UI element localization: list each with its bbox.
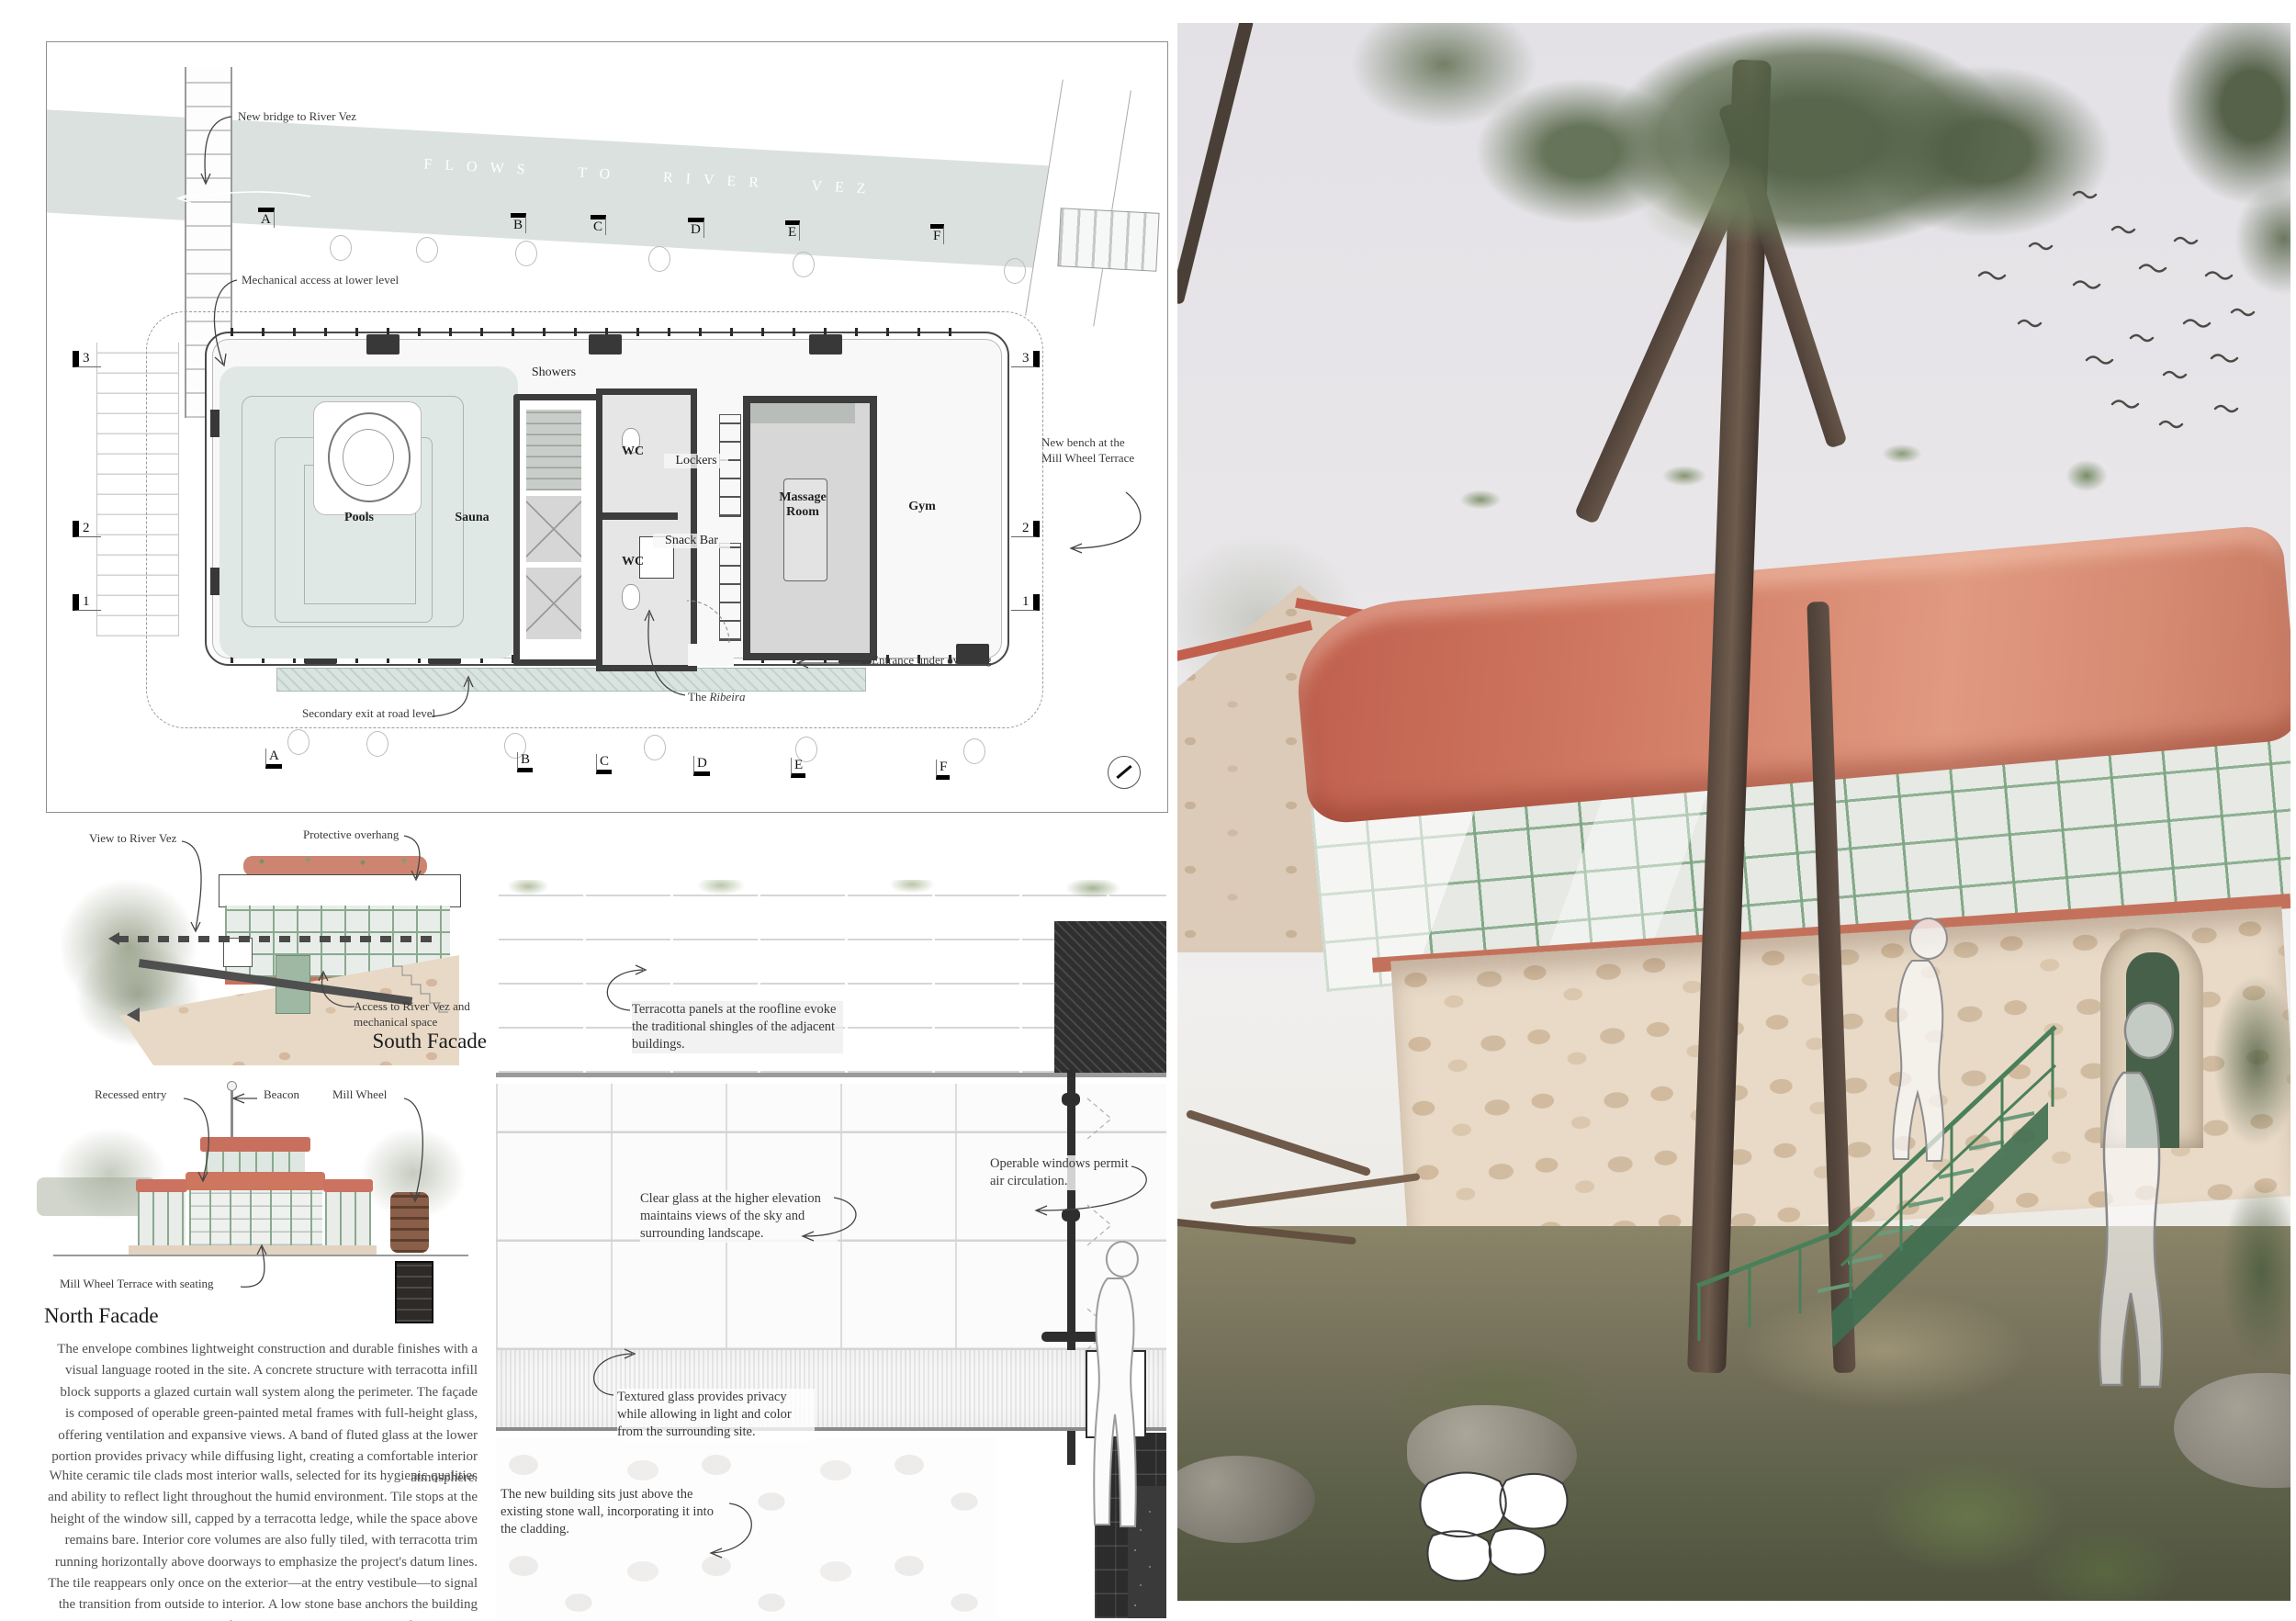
site-plan-panel: FLOWS TO RIVER VEZ bbox=[46, 41, 1168, 813]
wood-pole bbox=[1186, 1109, 1372, 1176]
roof-greenery bbox=[1453, 487, 1508, 512]
grid-number-left-3: 3 bbox=[73, 351, 101, 367]
bench-ledge bbox=[1086, 1350, 1146, 1438]
site-circle bbox=[648, 246, 670, 272]
left-wing-cornice bbox=[136, 1179, 187, 1192]
room-label-gym: Gym bbox=[899, 500, 945, 514]
render-image bbox=[1177, 23, 2290, 1601]
grid-letter-top-e: E bbox=[785, 220, 800, 241]
callout-mill-wheel: Mill Wheel bbox=[332, 1087, 415, 1103]
callout-ribeira-name: Ribeira bbox=[709, 690, 745, 704]
grid-letter-top-a: A bbox=[258, 208, 275, 228]
column-block bbox=[589, 334, 622, 355]
callout-view-river: View to River Vez bbox=[89, 831, 218, 847]
grid-letter-bottom-b: B bbox=[517, 752, 533, 772]
view-axis-arrowhead bbox=[108, 932, 119, 945]
grid-letter-top-d: D bbox=[688, 218, 704, 238]
wall-section-panel: Terracotta panels at the roofline evoke … bbox=[496, 880, 1166, 1618]
left-wing-glazing bbox=[138, 1192, 186, 1245]
callout-beacon: Beacon bbox=[264, 1087, 328, 1103]
clerestory bbox=[206, 1152, 305, 1172]
room-label-wc-lower: WC bbox=[614, 555, 651, 569]
callout-stone-wall: The new building sits just above the exi… bbox=[501, 1486, 730, 1538]
column-block bbox=[366, 334, 400, 355]
fluted-glass-zone bbox=[496, 1350, 1166, 1427]
callout-operable-windows: Operable windows permit air circulation. bbox=[990, 1155, 1130, 1190]
wood-pole bbox=[1210, 1173, 1421, 1210]
room-label-massage-room: Massage Room bbox=[769, 490, 837, 520]
sauna-benches bbox=[526, 410, 581, 490]
shower-stall bbox=[526, 568, 581, 639]
site-circle bbox=[366, 731, 388, 757]
room-label-wc-upper: WC bbox=[614, 445, 651, 459]
right-wing-cornice bbox=[323, 1179, 373, 1192]
north-facade-panel: Recessed entry Beacon Mill Wheel Mill Wh… bbox=[37, 1084, 485, 1330]
right-wing-glazing bbox=[325, 1192, 371, 1245]
entrance-gap bbox=[688, 644, 734, 666]
dirt-patch bbox=[1692, 1272, 2077, 1428]
site-circle bbox=[330, 235, 352, 261]
access-path-arrowhead bbox=[127, 1007, 140, 1022]
mullion-node bbox=[1062, 1209, 1080, 1221]
roof-greenery bbox=[1655, 462, 1714, 490]
room-label-lockers: Lockers bbox=[664, 454, 728, 468]
presentation-board: FLOWS TO RIVER VEZ bbox=[0, 0, 2296, 1621]
site-circle bbox=[515, 241, 537, 266]
pine-canopy-light bbox=[1609, 133, 1811, 271]
room-label-showers: Showers bbox=[517, 366, 591, 380]
site-circle bbox=[1004, 258, 1026, 284]
mullion-node bbox=[1062, 1093, 1080, 1106]
arch-door bbox=[2126, 952, 2179, 1148]
south-facade-panel: View to River Vez Protective overhang Ac… bbox=[37, 820, 485, 1075]
room-label-sauna: Sauna bbox=[440, 511, 504, 525]
beacon-mast bbox=[231, 1086, 233, 1140]
tree-branch bbox=[1177, 23, 1254, 305]
callout-access-river: Access to River Vez and mechanical space bbox=[354, 999, 501, 1030]
grid-letter-bottom-d: D bbox=[693, 756, 710, 776]
mill-wheel bbox=[390, 1192, 429, 1253]
room-label-pools: Pools bbox=[322, 511, 396, 525]
callout-entrance: Entrance under overhang bbox=[872, 653, 1028, 669]
callout-mill-wheel-terrace: Mill Wheel Terrace with seating bbox=[60, 1277, 243, 1292]
concrete-poche bbox=[1128, 1486, 1166, 1618]
ribeira-channel bbox=[276, 668, 866, 692]
column-block bbox=[809, 334, 842, 355]
pine-canopy bbox=[1811, 32, 2160, 271]
terrace-ground-line bbox=[53, 1255, 468, 1256]
wc-core bbox=[596, 388, 697, 671]
grid-letter-bottom-a: A bbox=[265, 749, 282, 769]
shower-stall bbox=[526, 496, 581, 562]
roof-garden bbox=[243, 856, 427, 876]
callout-clear-glass: Clear glass at the higher elevation main… bbox=[640, 1190, 838, 1243]
facade-stone-base bbox=[129, 1245, 377, 1255]
grid-number-right-1: 1 bbox=[1011, 594, 1040, 611]
callout-new-bench: New bench at the Mill Wheel Terrace bbox=[1041, 435, 1142, 467]
wc-divider bbox=[602, 512, 678, 520]
view-axis-arrow bbox=[118, 936, 434, 942]
grid-number-right-2: 2 bbox=[1011, 521, 1040, 537]
site-circle bbox=[793, 252, 815, 277]
grid-number-left-2: 2 bbox=[73, 521, 101, 537]
grid-number-left-1: 1 bbox=[73, 594, 101, 611]
grid-letter-bottom-c: C bbox=[596, 754, 612, 774]
north-facade-title: North Facade bbox=[44, 1304, 246, 1328]
site-circle bbox=[287, 729, 310, 755]
callout-ribeira-prefix: The bbox=[688, 690, 709, 704]
callout-mechanical-access: Mechanical access at lower level bbox=[242, 273, 444, 288]
north-arrow-needle bbox=[1116, 765, 1131, 779]
callout-secondary-exit: Secondary exit at road level bbox=[302, 706, 486, 722]
mill-wheel-detail bbox=[395, 1261, 433, 1323]
floor-slab-line bbox=[496, 1427, 1166, 1431]
grid-number-right-3: 3 bbox=[1011, 351, 1040, 367]
locker-bank bbox=[719, 543, 741, 641]
callout-new-bridge: New bridge to River Vez bbox=[238, 109, 394, 125]
grid-letter-bottom-f: F bbox=[936, 760, 950, 780]
grid-letter-bottom-e: E bbox=[791, 758, 805, 778]
beacon-lamp-icon bbox=[227, 1081, 237, 1091]
main-cornice bbox=[186, 1172, 325, 1190]
upper-cornice bbox=[200, 1137, 310, 1152]
roof-slab-line bbox=[496, 1073, 1166, 1077]
north-arrow-icon bbox=[1108, 756, 1141, 789]
site-circle bbox=[416, 237, 438, 263]
roof-poche bbox=[1054, 921, 1166, 1077]
room-label-snack-bar: Snack Bar bbox=[653, 534, 730, 548]
overhang-slab bbox=[219, 874, 461, 907]
existing-mill-structure bbox=[1057, 208, 1159, 272]
site-circle bbox=[963, 738, 985, 764]
boulder bbox=[1407, 1405, 1577, 1502]
grid-letter-top-f: F bbox=[930, 224, 944, 244]
mullion-cross-fitting bbox=[1041, 1332, 1102, 1342]
site-circle bbox=[644, 735, 666, 760]
spa-tub-inner bbox=[343, 429, 394, 486]
callout-terracotta-panels: Terracotta panels at the roofline evoke … bbox=[632, 1001, 843, 1053]
grid-letter-top-c: C bbox=[591, 215, 606, 235]
callout-ribeira: The Ribeira bbox=[688, 690, 789, 705]
callout-textured-glass: Textured glass provides privacy while al… bbox=[617, 1389, 815, 1441]
description-paragraph-2: White ceramic tile clads most interior w… bbox=[48, 1466, 478, 1621]
roof-greenery bbox=[1875, 441, 1929, 467]
grid-letter-top-b: B bbox=[511, 213, 526, 233]
roof-greenery bbox=[2059, 455, 2114, 497]
callout-recessed-entry: Recessed entry bbox=[95, 1087, 196, 1103]
massage-room-shelf bbox=[750, 403, 855, 423]
south-facade-title: South Facade bbox=[321, 1030, 487, 1053]
wc-fixture bbox=[622, 584, 640, 610]
callout-protective-overhang: Protective overhang bbox=[303, 827, 450, 843]
facade-glazing-center bbox=[189, 1190, 322, 1245]
